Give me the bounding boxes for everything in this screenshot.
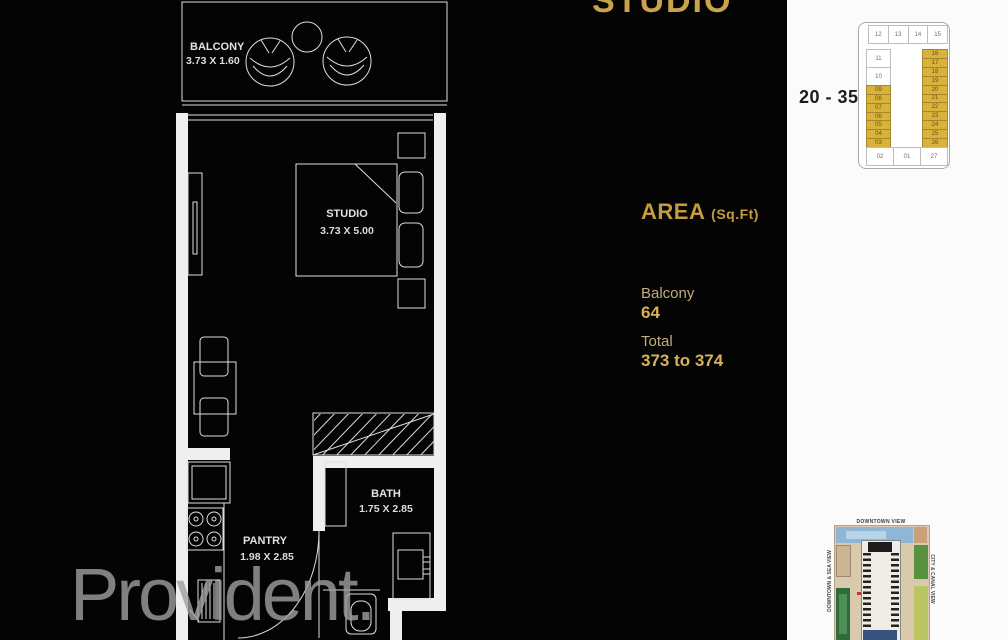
key-plan-left-gold-column: 09 08 07 06 05 04 03 xyxy=(867,86,891,148)
balcony-dims: 3.73 X 1.60 xyxy=(186,55,240,67)
studio-label: STUDIO xyxy=(326,208,368,220)
brochure-page: STUDIO BALCONY xyxy=(0,0,1008,640)
pantry-label: PANTRY xyxy=(243,535,288,547)
area-heading-text: AREA xyxy=(641,199,705,224)
key-plan-unit: 02 xyxy=(866,147,894,166)
balcony-chair-icon xyxy=(323,37,371,85)
balcony-area-value: 64 xyxy=(641,303,660,323)
studio-room: STUDIO 3.73 X 5.00 xyxy=(188,133,460,462)
site-map-green xyxy=(914,545,928,579)
unit-type-title-text: STUDIO xyxy=(592,0,752,13)
site-map-left-label: DOWNTOWN & SEA VIEW xyxy=(827,541,833,621)
nightstand-icon xyxy=(398,279,425,308)
floor-range-label: 20 - 35 xyxy=(799,87,859,108)
site-map: DOWNTOWN VIEW DOWNTOWN & SEA VIEW CITY &… xyxy=(820,516,942,640)
site-map-building xyxy=(861,540,901,640)
shower-icon xyxy=(325,462,346,526)
fridge-icon xyxy=(188,462,230,503)
key-plan-unit: 13 xyxy=(888,25,909,44)
balcony-room: BALCONY 3.73 X 1.60 xyxy=(182,2,447,105)
site-map-block xyxy=(914,527,927,543)
bath-label: BATH xyxy=(371,488,401,500)
site-map-block xyxy=(836,545,851,577)
key-plan-bottom-row: 02 01 27 xyxy=(867,148,948,166)
key-plan-unit: 01 xyxy=(893,147,921,166)
key-plan-unit: 15 xyxy=(927,25,948,44)
area-unit-text: (Sq.Ft) xyxy=(711,206,759,222)
total-area-value: 373 to 374 xyxy=(641,351,723,371)
key-plan: 12 13 14 15 11 10 09 08 07 06 05 04 03 1… xyxy=(858,22,950,169)
closet-icon xyxy=(188,173,202,275)
unit-type-title: STUDIO xyxy=(592,0,752,13)
key-plan-unit: 10 xyxy=(866,67,891,86)
bath-dims: 1.75 X 2.85 xyxy=(359,503,413,515)
watermark: Provident. xyxy=(70,558,373,632)
site-map-marker xyxy=(857,592,861,595)
key-plan-left-column: 11 10 xyxy=(867,50,891,86)
pillow-icon xyxy=(399,223,423,267)
total-area-label: Total xyxy=(641,333,673,350)
key-plan-top-row: 12 13 14 15 xyxy=(869,26,948,44)
site-map-amenity xyxy=(863,630,897,640)
wardrobe-icon xyxy=(274,408,460,462)
floor-plan: BALCONY 3.73 X 1.60 xyxy=(170,0,460,640)
site-map-plan xyxy=(834,525,930,640)
pillow-icon xyxy=(399,172,423,213)
nightstand-icon xyxy=(398,133,425,158)
site-map-tennis-court xyxy=(836,588,850,640)
round-table-icon xyxy=(292,22,322,52)
key-plan-unit: 27 xyxy=(920,147,948,166)
balcony-area-label: Balcony xyxy=(641,285,694,302)
area-heading: AREA (Sq.Ft) xyxy=(641,199,759,225)
balcony-label: BALCONY xyxy=(190,41,245,53)
key-plan-unit: 12 xyxy=(868,25,889,44)
vanity-icon xyxy=(393,533,430,599)
key-plan-unit: 11 xyxy=(866,49,891,68)
studio-dims: 3.73 X 5.00 xyxy=(320,225,374,237)
dining-set-icon xyxy=(194,337,236,436)
key-plan-unit: 14 xyxy=(908,25,929,44)
balcony-chair-icon xyxy=(246,38,294,86)
site-map-green xyxy=(914,586,928,640)
key-plan-right-gold-column: 16 17 18 19 20 21 22 23 24 25 26 xyxy=(923,50,948,148)
stove-icon xyxy=(187,508,223,550)
bed-icon xyxy=(296,164,397,276)
